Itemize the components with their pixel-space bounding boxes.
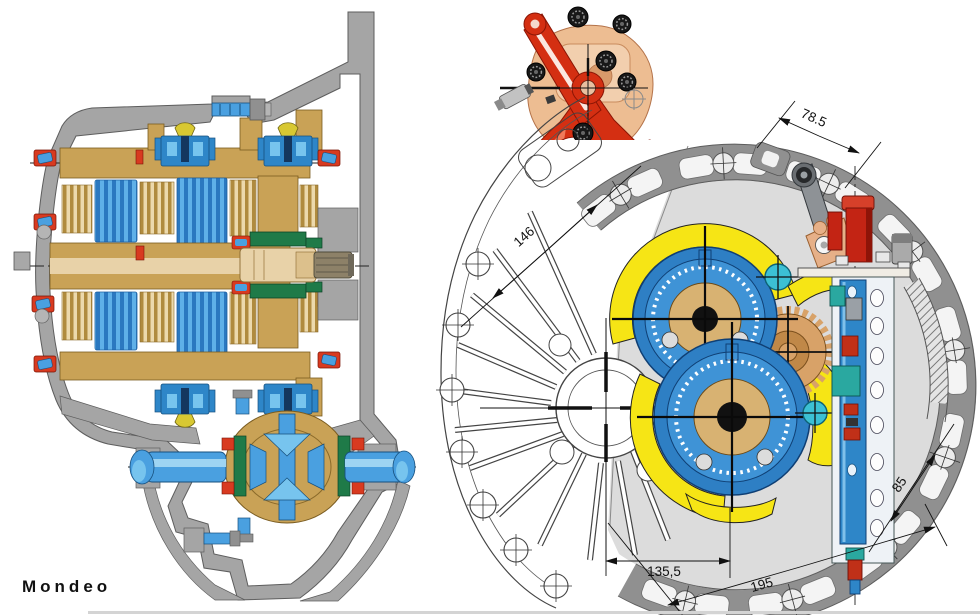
model-caption: Mondeo	[22, 577, 111, 596]
axle-shaft-left	[130, 450, 226, 484]
axle-shaft-right	[345, 451, 415, 483]
gearbox-cross-section-view	[14, 12, 416, 601]
technical-illustration: 78.5 146 85 135,5	[0, 0, 980, 615]
bottom-border-line	[88, 611, 980, 614]
svg-text:78.5: 78.5	[799, 106, 829, 130]
svg-text:135,5: 135,5	[647, 564, 681, 579]
gearbox-end-view: 78.5 146 85 135,5	[436, 97, 976, 615]
synchronizer-lower-1	[155, 384, 215, 427]
